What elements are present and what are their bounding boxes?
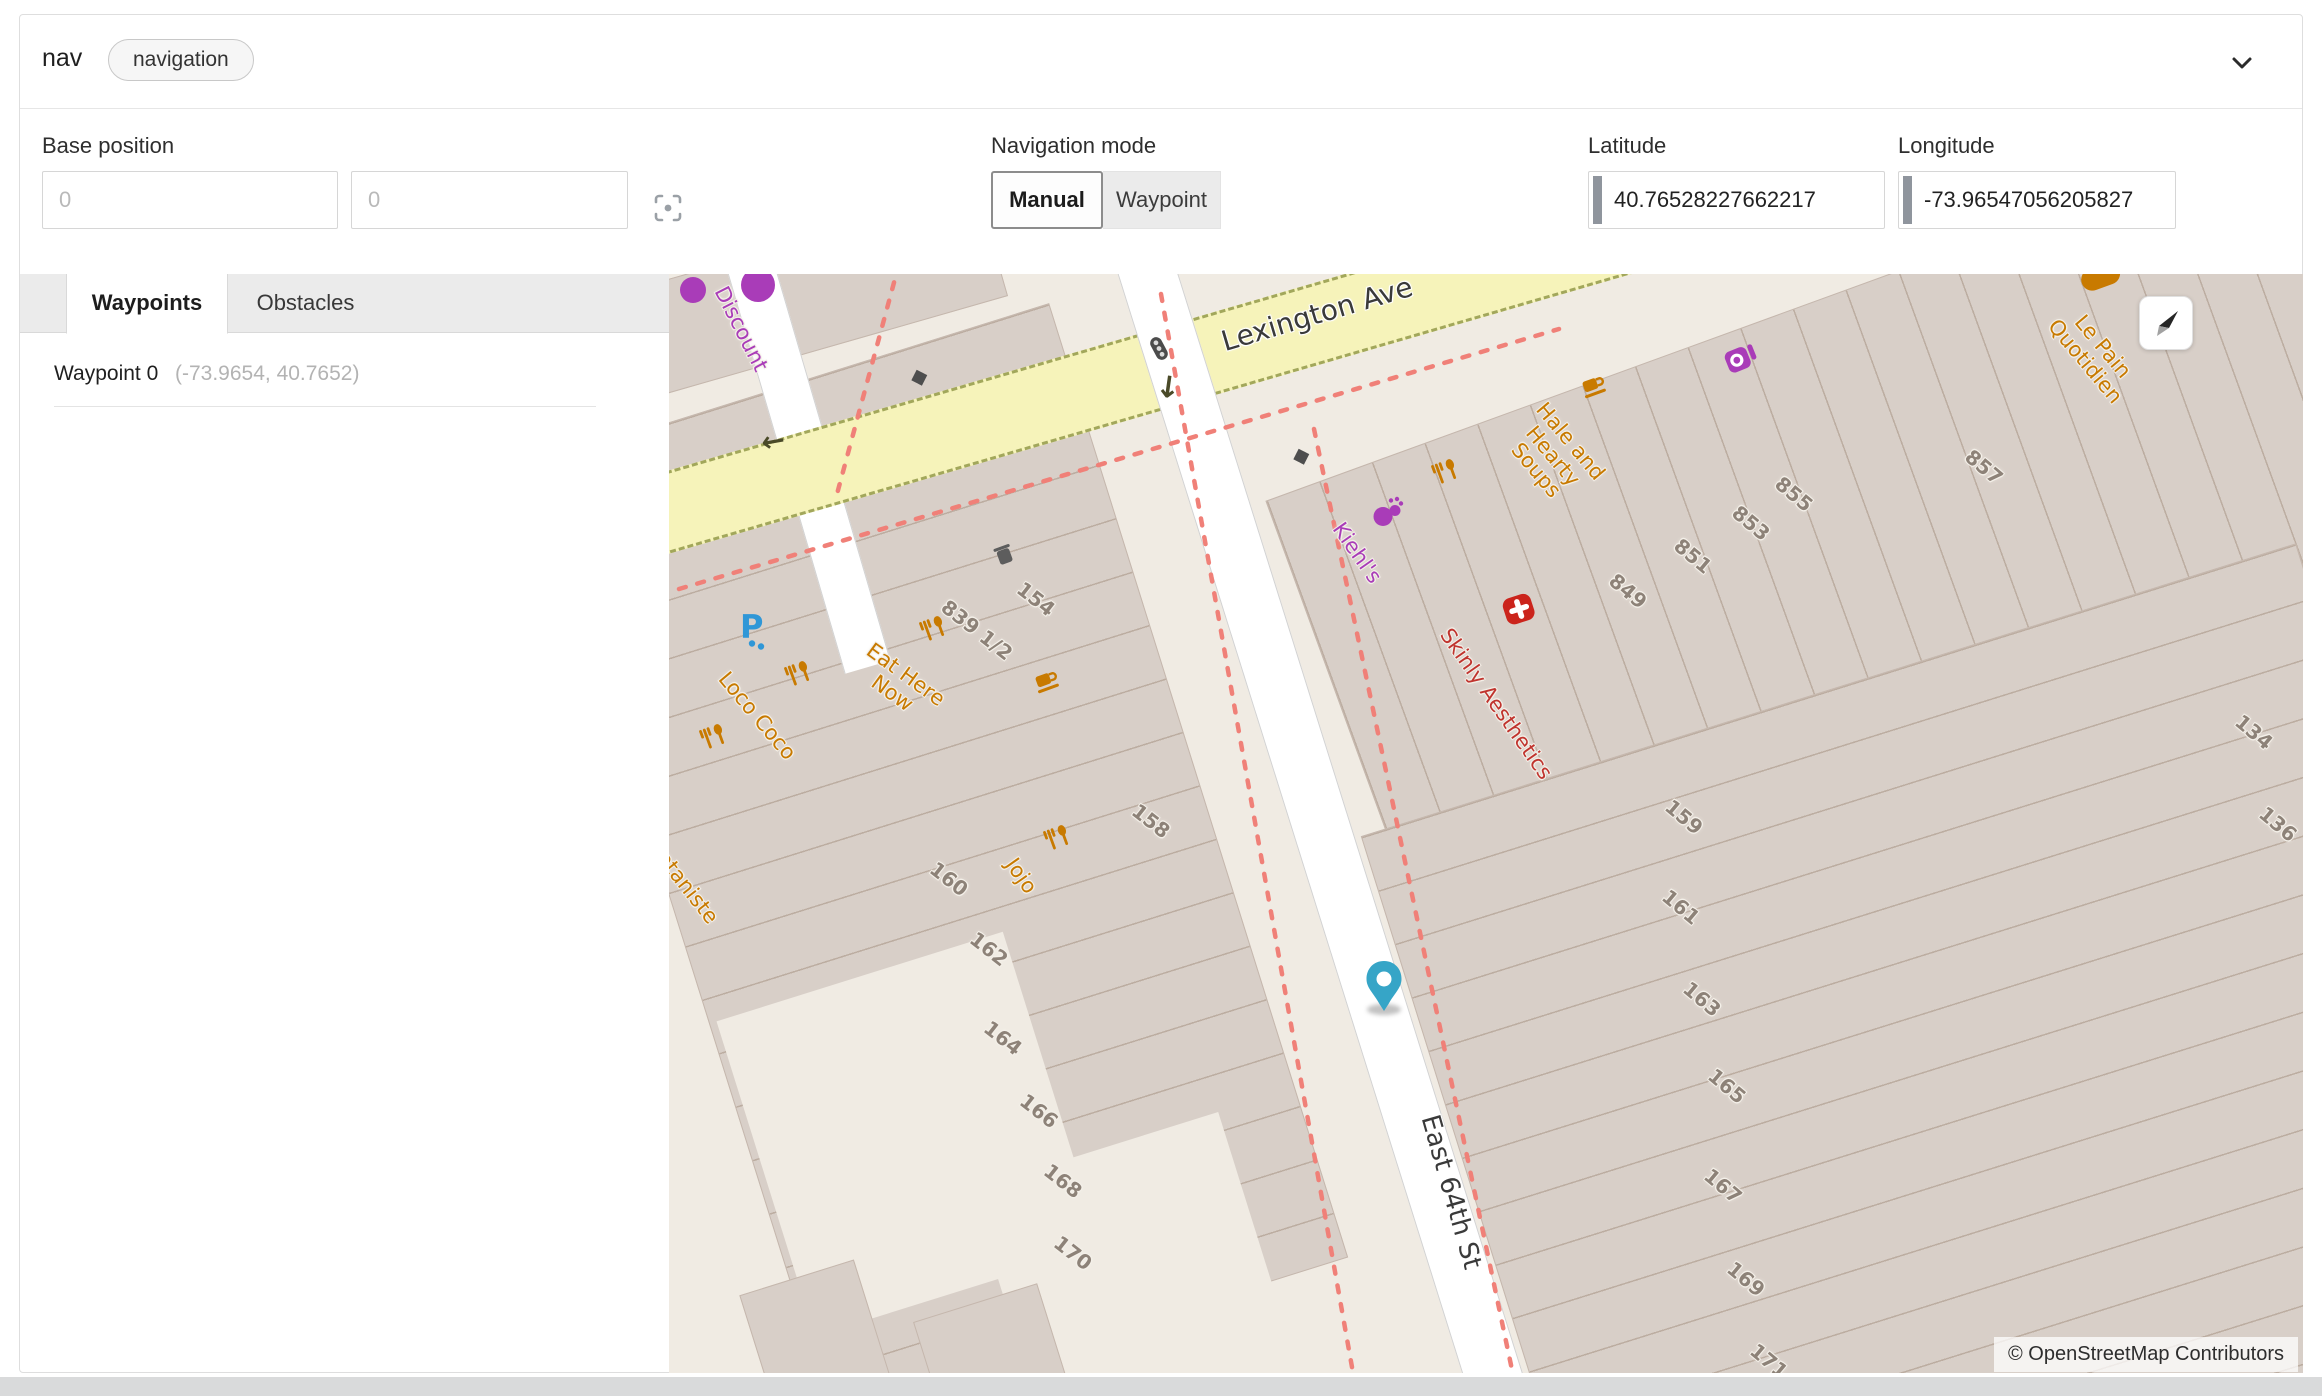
- device-name: nav: [42, 44, 82, 73]
- parking-icon: P: [738, 610, 770, 657]
- latitude-field: [1588, 171, 1885, 229]
- waypoint-row[interactable]: Waypoint 0(-73.9654, 40.7652): [20, 345, 669, 407]
- restaurant-icon: [784, 663, 812, 690]
- bakery-icon: [2080, 274, 2122, 296]
- dot-purple-icon: [680, 277, 706, 303]
- base-position-label: Base position: [42, 133, 174, 159]
- navigation-mode-label: Navigation mode: [991, 133, 1156, 159]
- divider: [54, 406, 596, 407]
- longitude-field: [1898, 171, 2176, 229]
- navigation-badge: navigation: [108, 39, 254, 81]
- latitude-input[interactable]: [1602, 172, 1884, 228]
- tab-waypoints[interactable]: Waypoints: [66, 274, 228, 334]
- clinic-icon: [1503, 593, 1535, 630]
- restaurant-icon: [1431, 461, 1459, 488]
- latitude-drag-handle[interactable]: [1593, 176, 1602, 224]
- navigation-mode-segmented: ManualWaypoint: [991, 171, 1221, 229]
- trash-icon: [995, 544, 1013, 571]
- longitude-drag-handle[interactable]: [1903, 176, 1912, 224]
- app-screen: nav navigation Base position Navigation …: [0, 0, 2322, 1396]
- panel-header: nav navigation: [20, 15, 2302, 109]
- longitude-label: Longitude: [1898, 133, 1995, 159]
- svg-text:P: P: [740, 610, 763, 646]
- arrow-left-icon: ←: [761, 425, 784, 458]
- map-attribution: © OpenStreetMap Contributors: [1994, 1337, 2298, 1372]
- waypoint-coords: (-73.9654, 40.7652): [175, 362, 359, 386]
- restaurant-icon: [1043, 827, 1071, 854]
- restaurant-icon: [919, 618, 947, 645]
- arrow-down-icon: ↓: [1155, 371, 1180, 406]
- diamond-icon: ◆: [911, 365, 928, 390]
- cosmetics-icon: [1371, 496, 1407, 533]
- waypoint-name: Waypoint 0: [54, 362, 158, 386]
- bottom-scroll-strip[interactable]: [0, 1377, 2322, 1396]
- base-position-y-input[interactable]: [351, 171, 628, 229]
- restaurant-icon: [699, 726, 727, 753]
- form-row: Base position Navigation mode ManualWayp…: [20, 109, 2302, 274]
- traffic-icon: [1152, 336, 1166, 367]
- base-position-x-input[interactable]: [42, 171, 338, 229]
- tab-obstacles[interactable]: Obstacles: [228, 274, 383, 333]
- cafe-icon: [1581, 375, 1607, 404]
- navigation-mode-option-waypoint[interactable]: Waypoint: [1103, 171, 1221, 229]
- map-orientation-button[interactable]: [2139, 296, 2193, 350]
- chevron-down-icon[interactable]: [2226, 47, 2258, 79]
- pick-position-icon[interactable]: [651, 191, 685, 225]
- waypoint-marker-pin[interactable]: [1364, 960, 1404, 1017]
- nav-panel-card: nav navigation Base position Navigation …: [19, 14, 2303, 1373]
- compass-cursor-icon: [2149, 306, 2183, 340]
- map-view[interactable]: Lexington AveEast 64th St 154839 1/21581…: [669, 274, 2303, 1373]
- longitude-input[interactable]: [1912, 172, 2175, 228]
- cafe-icon: [1034, 670, 1060, 699]
- diamond-icon: ◆: [1293, 444, 1310, 469]
- shop-purple-icon: [1723, 344, 1759, 379]
- navigation-mode-option-manual[interactable]: Manual: [991, 171, 1103, 229]
- tab-strip: WaypointsObstacles: [20, 274, 669, 333]
- latitude-label: Latitude: [1588, 133, 1666, 159]
